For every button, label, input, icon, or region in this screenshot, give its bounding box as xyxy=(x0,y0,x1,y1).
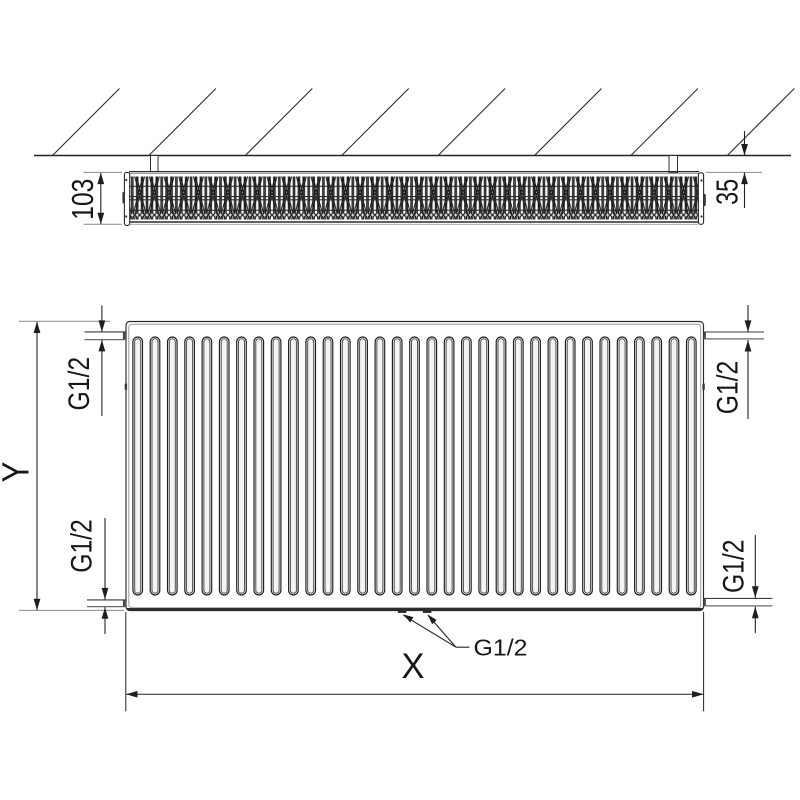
svg-text:X: X xyxy=(402,647,425,686)
svg-text:G1/2: G1/2 xyxy=(718,540,751,594)
svg-text:G1/2: G1/2 xyxy=(63,357,96,411)
svg-text:G1/2: G1/2 xyxy=(711,361,744,415)
svg-text:35: 35 xyxy=(709,179,744,205)
svg-text:G1/2: G1/2 xyxy=(65,519,98,573)
svg-text:Y: Y xyxy=(0,462,38,483)
svg-text:G1/2: G1/2 xyxy=(474,635,528,661)
svg-text:103: 103 xyxy=(65,179,100,220)
